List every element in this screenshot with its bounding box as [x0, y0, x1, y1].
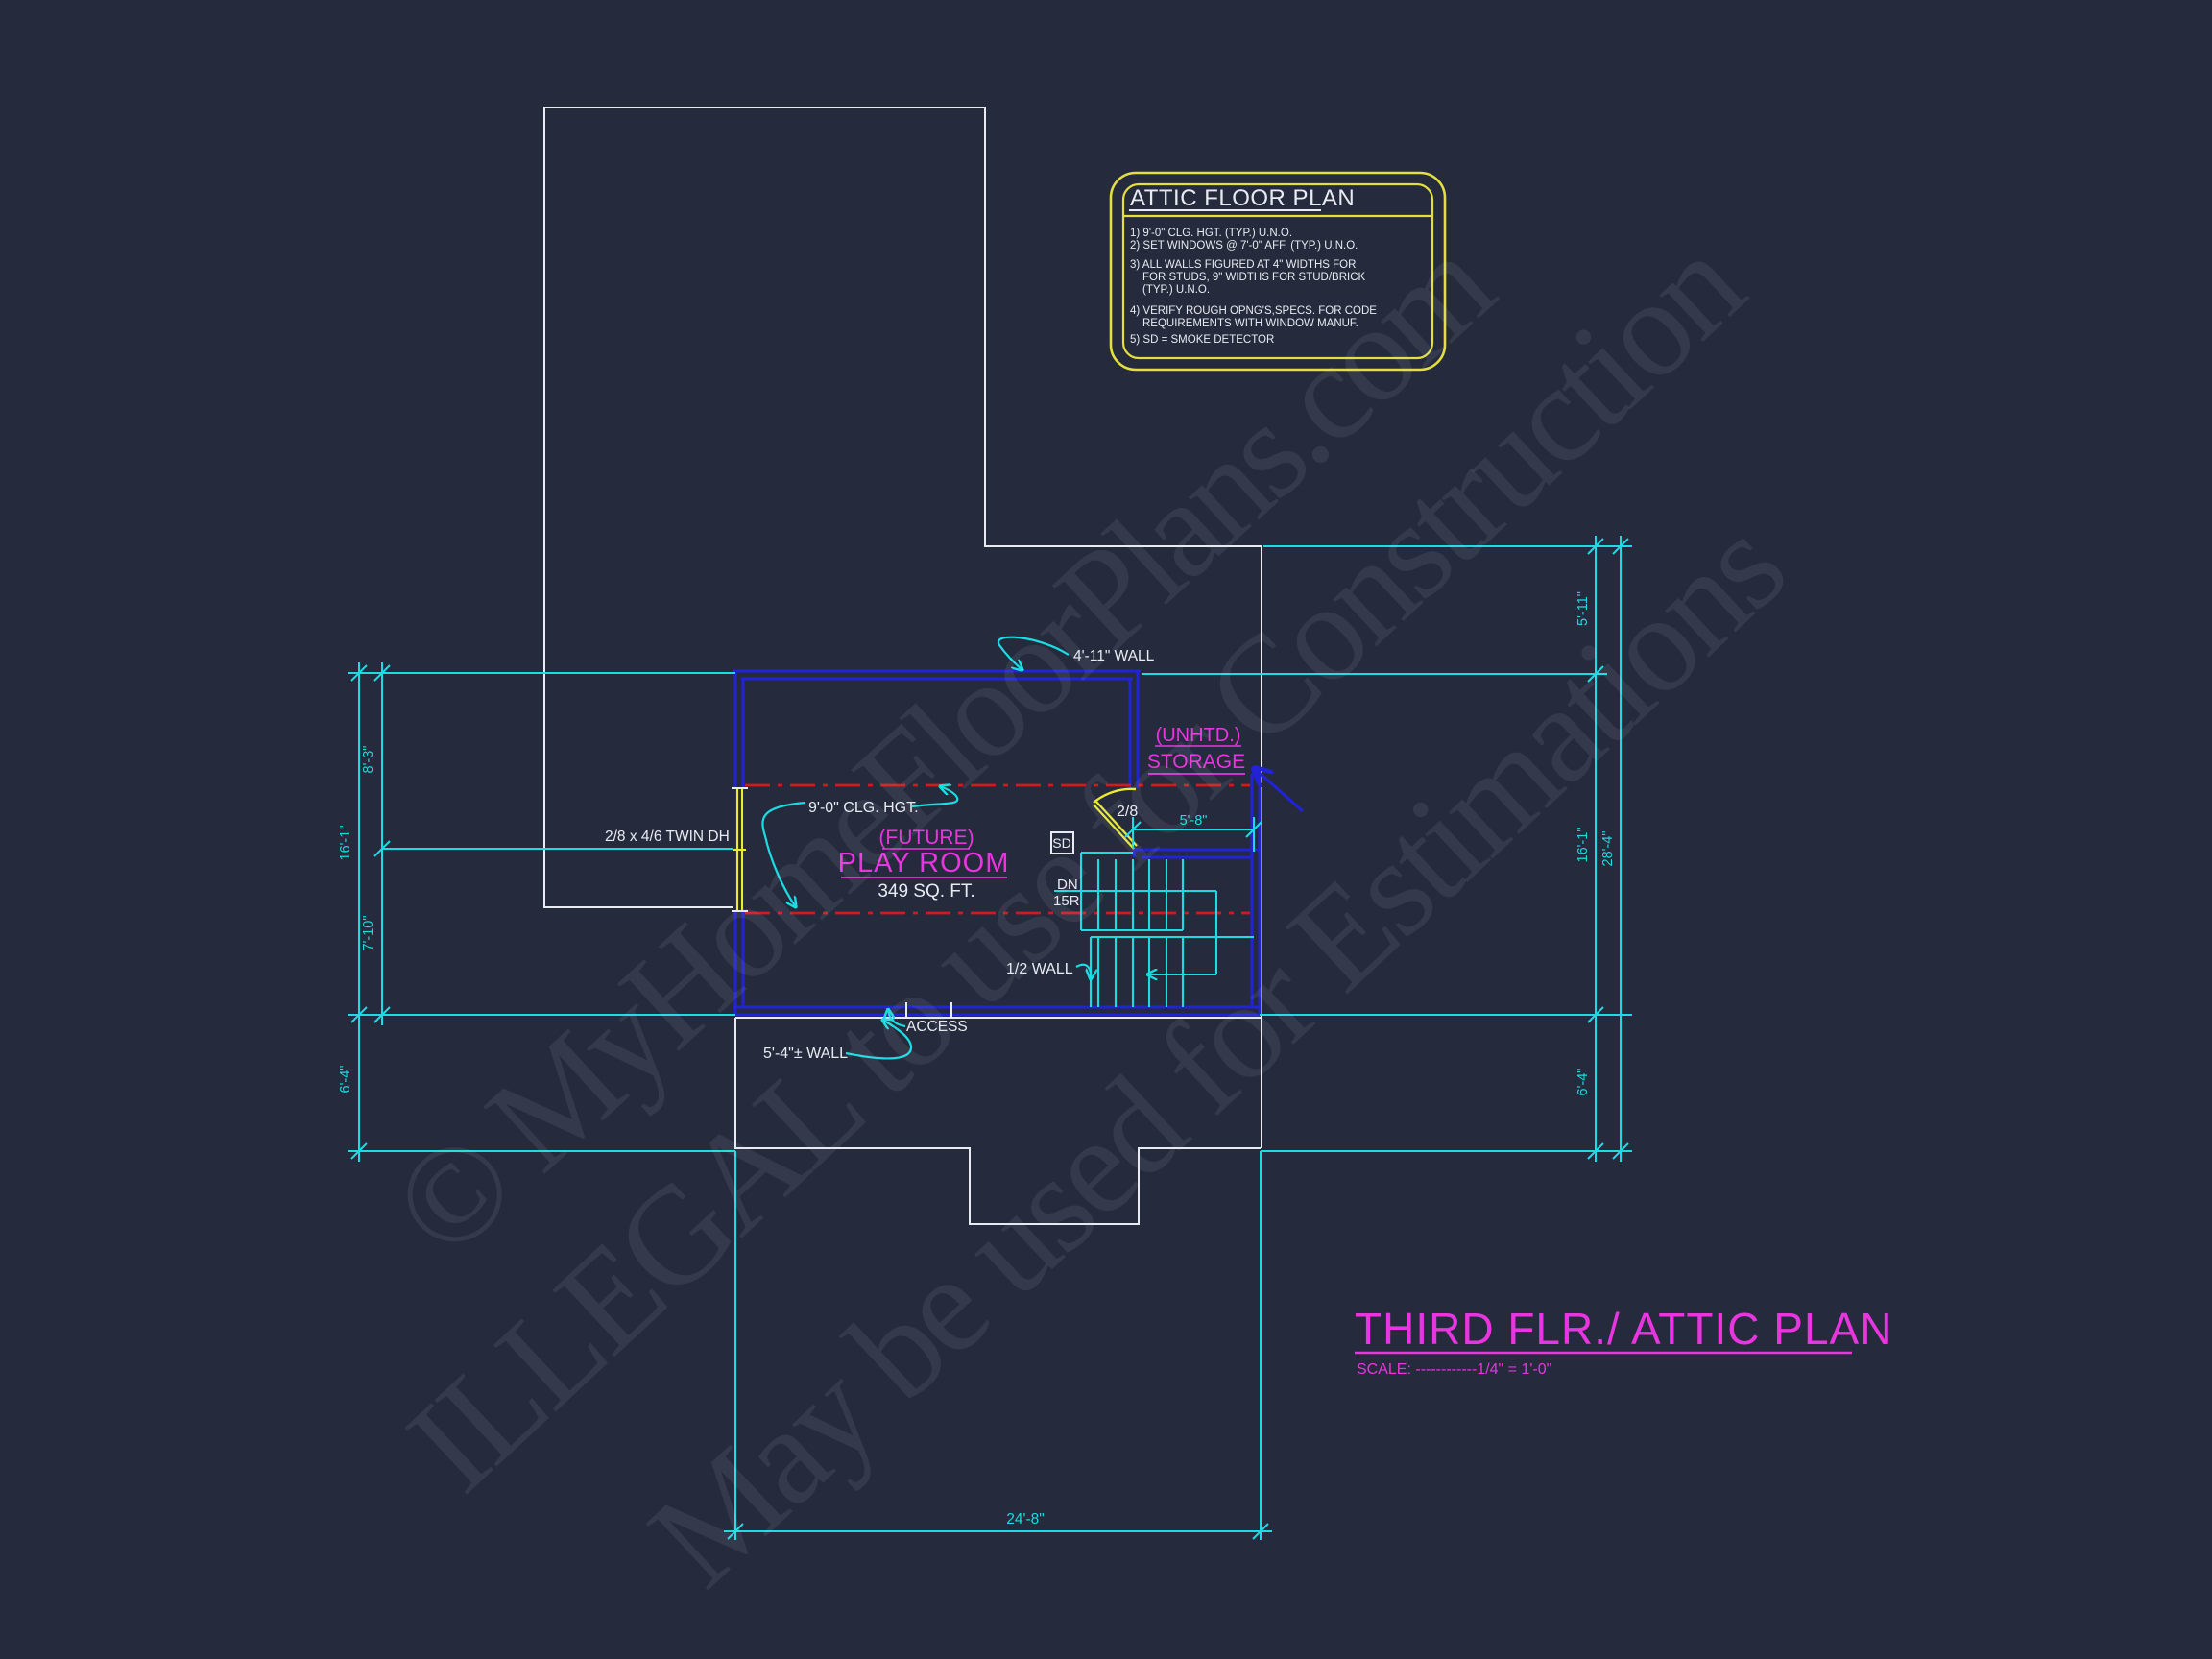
svg-text:3) ALL WALLS FIGURED AT 4" WID: 3) ALL WALLS FIGURED AT 4" WIDTHS FOR [1130, 259, 1356, 271]
svg-text:5) SD = SMOKE DETECTOR: 5) SD = SMOKE DETECTOR [1130, 334, 1274, 346]
svg-text:SCALE: ------------1/4" = 1'-0: SCALE: ------------1/4" = 1'-0" [1357, 1361, 1551, 1378]
svg-text:28'-4": 28'-4" [1600, 831, 1616, 867]
svg-text:16'-1": 16'-1" [1575, 828, 1591, 863]
svg-text:16'-1": 16'-1" [338, 826, 353, 861]
svg-text:ATTIC FLOOR PLAN: ATTIC FLOOR PLAN [1130, 185, 1355, 211]
svg-text:6'-4": 6'-4" [338, 1066, 353, 1094]
svg-text:24'-8": 24'-8" [1006, 1511, 1044, 1527]
svg-text:2) SET WINDOWS @ 7'-0" AFF. (T: 2) SET WINDOWS @ 7'-0" AFF. (TYP.) U.N.O… [1130, 240, 1358, 252]
svg-text:6'-4": 6'-4" [1575, 1069, 1591, 1096]
svg-text:THIRD FLR./ ATTIC PLAN: THIRD FLR./ ATTIC PLAN [1355, 1304, 1892, 1354]
svg-text:1) 9'-0" CLG. HGT. (TYP.) U.N: 1) 9'-0" CLG. HGT. (TYP.) U.N.O. [1130, 228, 1292, 239]
svg-text:2/8 x 4/6 TWIN DH: 2/8 x 4/6 TWIN DH [605, 829, 730, 845]
svg-text:8'-3": 8'-3" [361, 746, 376, 774]
svg-text:(TYP.) U.N.O.: (TYP.) U.N.O. [1142, 284, 1210, 296]
svg-text:7'-10": 7'-10" [361, 916, 376, 951]
svg-text:FOR STUDS, 9" WIDTHS FOR STUD/: FOR STUDS, 9" WIDTHS FOR STUD/BRICK [1142, 272, 1366, 283]
